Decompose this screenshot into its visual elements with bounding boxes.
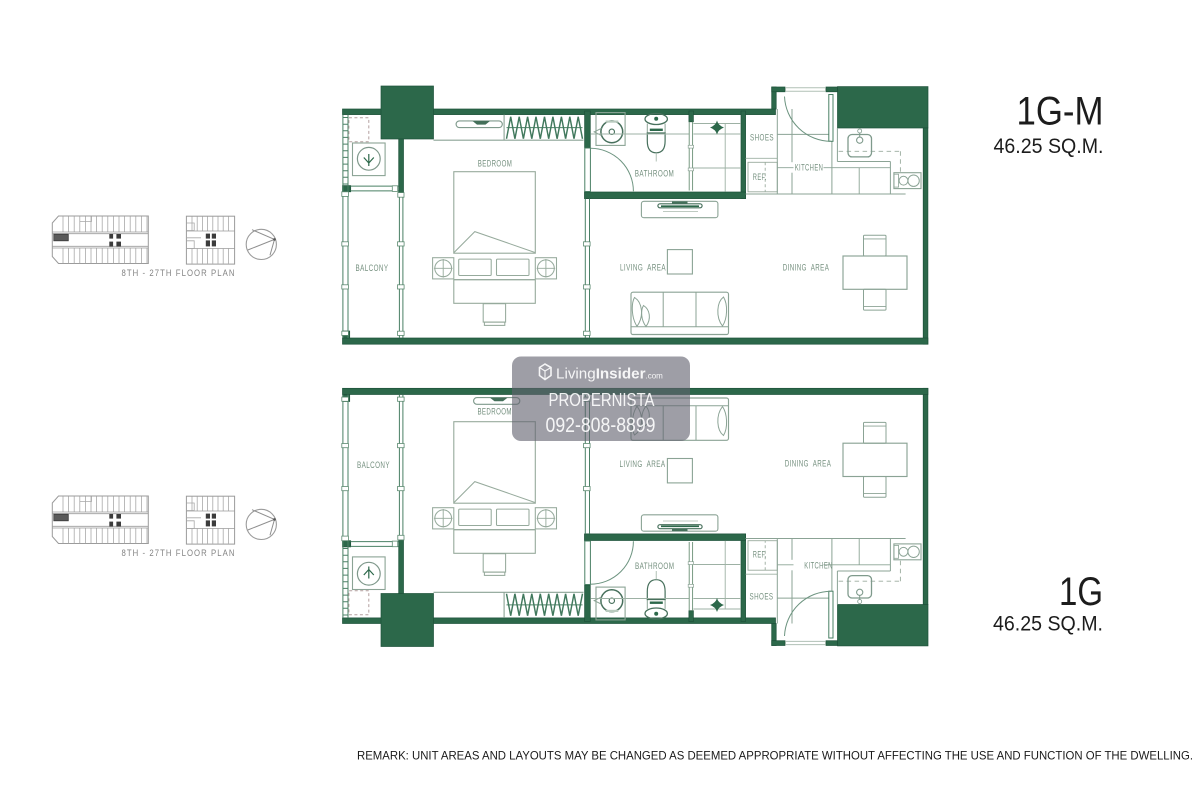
svg-text:1G: 1G [1059, 570, 1103, 614]
svg-text:PROPERNISTA: PROPERNISTA [549, 389, 656, 410]
svg-text:DINING AREA: DINING AREA [783, 263, 830, 273]
svg-text:LIVING AREA: LIVING AREA [620, 263, 666, 273]
svg-text:092-808-8899: 092-808-8899 [546, 413, 656, 437]
svg-text:SHOES: SHOES [750, 592, 774, 602]
svg-text:46.25 SQ.M.: 46.25 SQ.M. [994, 135, 1104, 158]
svg-text:1G-M: 1G-M [1017, 90, 1104, 134]
svg-text:LIVING AREA: LIVING AREA [620, 459, 666, 469]
svg-text:SHOES: SHOES [750, 132, 774, 142]
svg-text:KITCHEN: KITCHEN [804, 560, 833, 570]
svg-text:REF.: REF. [753, 549, 767, 559]
svg-text:REMARK: UNIT AREAS AND LAYOUTS: REMARK: UNIT AREAS AND LAYOUTS MAY BE CH… [357, 749, 1193, 763]
svg-text:BATHROOM: BATHROOM [635, 561, 675, 571]
svg-text:BALCONY: BALCONY [357, 460, 390, 470]
svg-text:BATHROOM: BATHROOM [635, 169, 675, 179]
svg-text:REF.: REF. [753, 172, 767, 182]
svg-text:KITCHEN: KITCHEN [795, 163, 824, 173]
svg-text:DINING AREA: DINING AREA [785, 458, 832, 468]
svg-text:BEDROOM: BEDROOM [477, 407, 512, 417]
svg-text:46.25 SQ.M.: 46.25 SQ.M. [993, 613, 1103, 636]
svg-text:BALCONY: BALCONY [356, 263, 389, 273]
svg-text:BEDROOM: BEDROOM [478, 158, 513, 168]
